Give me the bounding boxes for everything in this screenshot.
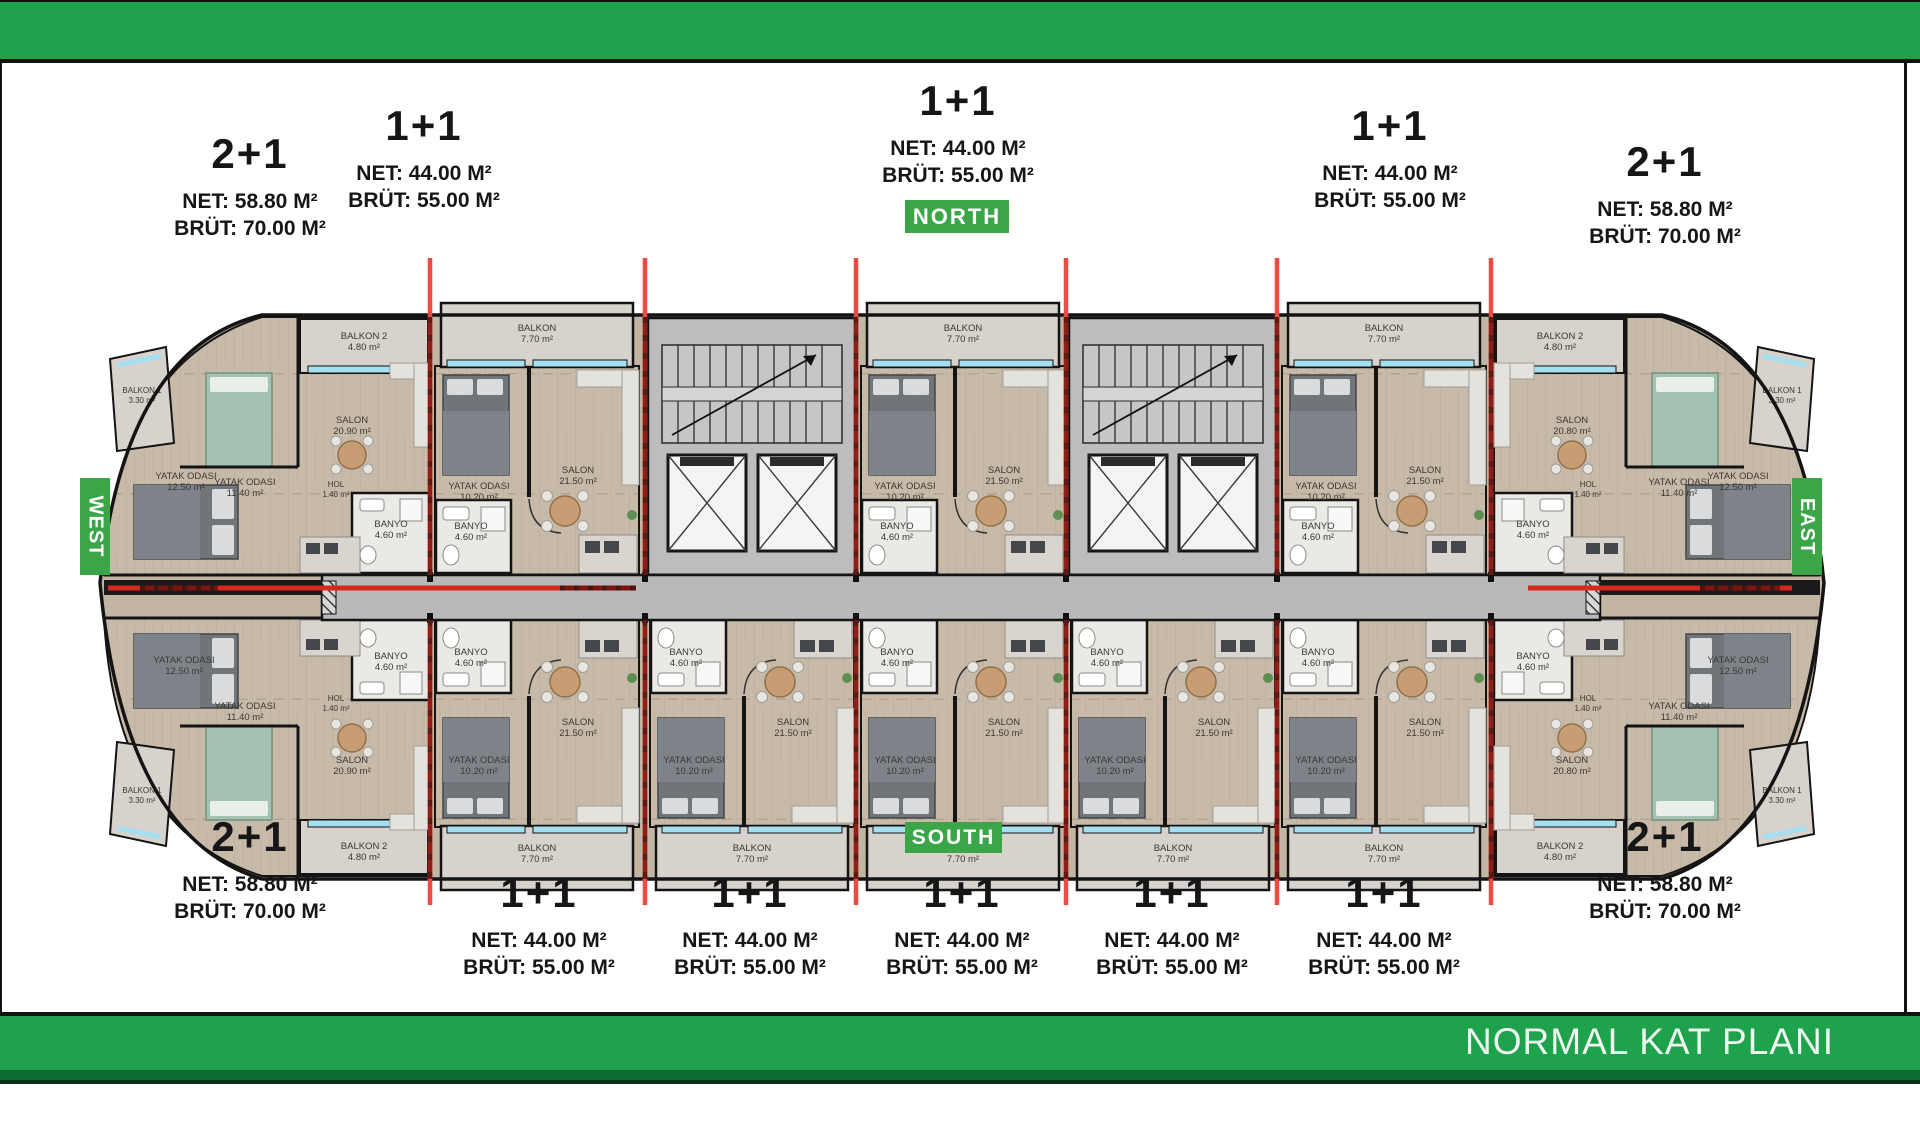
unit-type: 2+1 — [1589, 141, 1741, 183]
unit-label-top-4: 1+1 NET: 44.00 M² BRÜT: 55.00 M² — [1314, 105, 1466, 214]
unit-net-area: NET: 44.00 M² — [463, 927, 615, 954]
unit-brut-area: BRÜT: 55.00 M² — [1314, 187, 1466, 214]
unit-net-area: NET: 58.80 M² — [174, 871, 326, 898]
unit-type: 1+1 — [348, 105, 500, 147]
unit-label-bottom-4: 1+1 NET: 44.00 M² BRÜT: 55.00 M² — [886, 872, 1038, 981]
unit-label-top-5: 2+1 NET: 58.80 M² BRÜT: 70.00 M² — [1589, 141, 1741, 250]
west-badge: WEST — [80, 478, 110, 575]
unit-brut-area: BRÜT: 55.00 M² — [1308, 954, 1460, 981]
south-badge: SOUTH — [905, 822, 1002, 853]
unit-brut-area: BRÜT: 55.00 M² — [463, 954, 615, 981]
unit-label-bottom-1: 2+1 NET: 58.80 M² BRÜT: 70.00 M² — [174, 816, 326, 925]
core-west — [648, 318, 855, 575]
unit-net-area: NET: 44.00 M² — [1096, 927, 1248, 954]
unit-label-bottom-3: 1+1 NET: 44.00 M² BRÜT: 55.00 M² — [674, 872, 826, 981]
floor-plan-area: BALKON7.70 m² YATAK ODASI10.20 m² SALON2… — [0, 63, 1920, 1012]
unit-label-bottom-5: 1+1 NET: 44.00 M² BRÜT: 55.00 M² — [1096, 872, 1248, 981]
east-badge: EAST — [1792, 478, 1822, 575]
unit-brut-area: BRÜT: 55.00 M² — [1096, 954, 1248, 981]
unit-type: 1+1 — [463, 872, 615, 914]
unit-net-area: NET: 44.00 M² — [1308, 927, 1460, 954]
unit-type: 2+1 — [174, 133, 326, 175]
floor-plan-poster: BALKON7.70 m² YATAK ODASI10.20 m² SALON2… — [0, 0, 1920, 1080]
north-badge: NORTH — [905, 200, 1009, 233]
svg-text:BANYO4.60 m²: BANYO4.60 m² — [374, 519, 407, 541]
svg-text:BANYO4.60 m²: BANYO4.60 m² — [374, 651, 407, 673]
unit-brut-area: BRÜT: 70.00 M² — [174, 215, 326, 242]
unit-net-area: NET: 58.80 M² — [1589, 196, 1741, 223]
unit-type: 2+1 — [1589, 816, 1741, 858]
svg-text:SALON20.90 m²: SALON20.90 m² — [333, 415, 371, 437]
unit-type: 1+1 — [882, 80, 1034, 122]
left-frame-line — [0, 63, 2, 1012]
unit-type: 1+1 — [1308, 872, 1460, 914]
unit-type: 1+1 — [1314, 105, 1466, 147]
unit-label-bottom-6: 1+1 NET: 44.00 M² BRÜT: 55.00 M² — [1308, 872, 1460, 981]
core-east — [1069, 318, 1276, 575]
unit-brut-area: BRÜT: 70.00 M² — [1589, 223, 1741, 250]
unit-type: 1+1 — [674, 872, 826, 914]
right-frame-line — [1904, 63, 1907, 1012]
unit-label-top-2: 1+1 NET: 44.00 M² BRÜT: 55.00 M² — [348, 105, 500, 214]
top-green-bar — [0, 0, 1920, 63]
unit-net-area: NET: 58.80 M² — [174, 188, 326, 215]
unit-brut-area: BRÜT: 55.00 M² — [886, 954, 1038, 981]
svg-text:SALON20.80 m²: SALON20.80 m² — [1553, 415, 1591, 437]
unit-net-area: NET: 58.80 M² — [1589, 871, 1741, 898]
unit-brut-area: BRÜT: 70.00 M² — [174, 898, 326, 925]
unit-label-top-3: 1+1 NET: 44.00 M² BRÜT: 55.00 M² — [882, 80, 1034, 189]
unit-brut-area: BRÜT: 55.00 M² — [674, 954, 826, 981]
unit-brut-area: BRÜT: 55.00 M² — [882, 162, 1034, 189]
unit-type: 1+1 — [886, 872, 1038, 914]
unit-net-area: NET: 44.00 M² — [882, 135, 1034, 162]
unit-net-area: NET: 44.00 M² — [674, 927, 826, 954]
unit-net-area: NET: 44.00 M² — [348, 160, 500, 187]
svg-text:BANYO4.60 m²: BANYO4.60 m² — [1516, 651, 1549, 673]
svg-text:BANYO4.60 m²: BANYO4.60 m² — [1516, 519, 1549, 541]
page-title: NORMAL KAT PLANI — [1465, 1021, 1834, 1063]
unit-label-bottom-7: 2+1 NET: 58.80 M² BRÜT: 70.00 M² — [1589, 816, 1741, 925]
unit-net-area: NET: 44.00 M² — [1314, 160, 1466, 187]
unit-type: 1+1 — [1096, 872, 1248, 914]
top-green-bar-fill — [0, 2, 1920, 59]
unit-label-bottom-2: 1+1 NET: 44.00 M² BRÜT: 55.00 M² — [463, 872, 615, 981]
svg-text:SALON20.80 m²: SALON20.80 m² — [1553, 755, 1591, 777]
corridor — [322, 575, 1600, 620]
unit-brut-area: BRÜT: 55.00 M² — [348, 187, 500, 214]
svg-text:SALON20.90 m²: SALON20.90 m² — [333, 755, 371, 777]
unit-brut-area: BRÜT: 70.00 M² — [1589, 898, 1741, 925]
unit-net-area: NET: 44.00 M² — [886, 927, 1038, 954]
unit-type: 2+1 — [174, 816, 326, 858]
unit-label-top-1: 2+1 NET: 58.80 M² BRÜT: 70.00 M² — [174, 133, 326, 242]
